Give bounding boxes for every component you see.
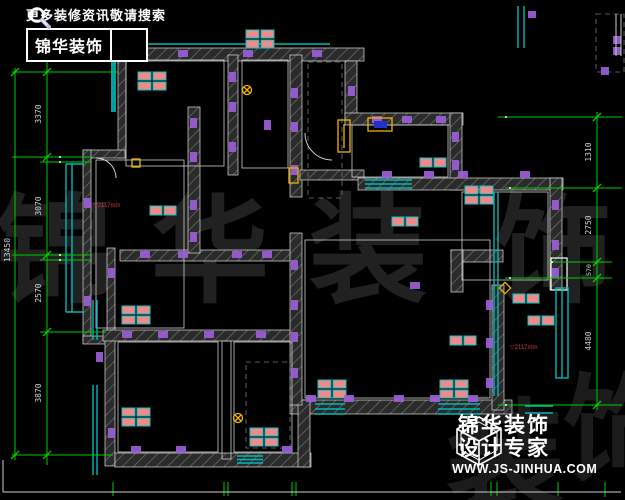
dim-left-1: 3370	[34, 104, 43, 123]
cube-logo-icon	[452, 414, 506, 468]
watermark-char: 装	[309, 186, 427, 318]
brand-name: 锦华装饰	[28, 30, 110, 60]
search-icon	[110, 30, 146, 60]
floor-plan-screenshot: 锦 华 装 饰 装 饰	[0, 0, 625, 500]
dim-left-3: 2570	[34, 283, 43, 302]
dim-left-4: 3870	[34, 383, 43, 402]
dim-left-total: 13450	[3, 238, 12, 262]
dim-right-3: 570	[585, 264, 593, 276]
level-annotation: ▽2117mm	[93, 203, 121, 209]
brand-footer: 锦华装饰 设计专家 WWW.JS-JINHUA.COM	[452, 414, 624, 476]
dim-right-2: 2750	[584, 215, 593, 234]
brand-header: 更多装修资讯敬请搜索 锦华装饰	[26, 5, 166, 62]
brand-search-box: 锦华装饰	[26, 28, 148, 62]
dim-right-1: 1310	[584, 142, 593, 161]
level-annotation: ▽2117mm	[510, 345, 538, 351]
dim-left-2: 3070	[34, 196, 43, 215]
dim-right-4: 4480	[584, 331, 593, 350]
